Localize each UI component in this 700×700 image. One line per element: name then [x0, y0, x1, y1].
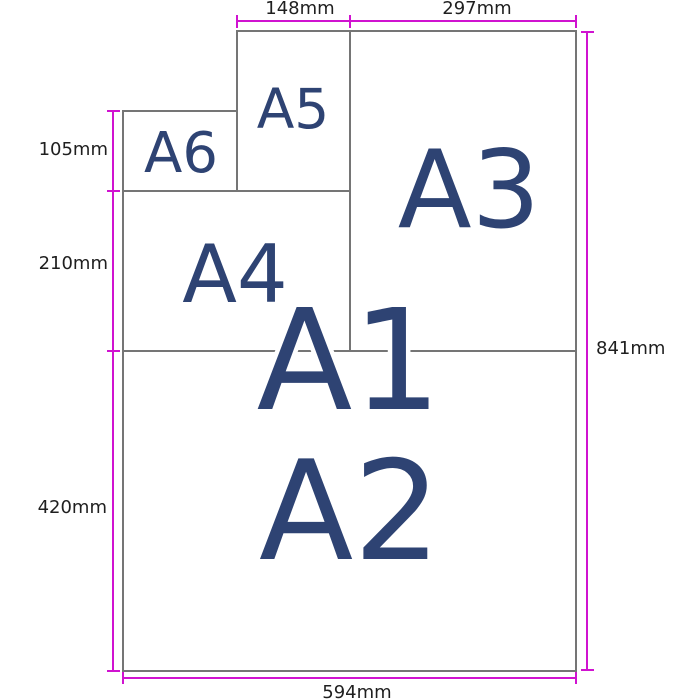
dimension-label-a3-width: 297mm — [442, 0, 511, 19]
a5-paper-label: A5 — [257, 77, 330, 141]
a2-paper-label: A2 — [259, 431, 441, 592]
dimension-label-a4-height: 210mm — [39, 253, 108, 274]
dimension-label-a2-height: 420mm — [38, 497, 107, 518]
paper-sizes-diagram: 148mm 297mm 105mm 210mm 420mm 841mm 594m… — [0, 0, 700, 700]
dimension-line-right — [581, 32, 594, 670]
a3-paper-label: A3 — [398, 128, 541, 253]
dimension-label-a1-height: 841mm — [596, 338, 665, 359]
dimension-label-a5-width: 148mm — [265, 0, 334, 19]
a1-paper-label: A1 — [257, 280, 442, 443]
dimension-label-a6-height: 105mm — [39, 139, 108, 160]
a6-paper-label: A6 — [144, 121, 218, 186]
dimension-line-left — [107, 111, 120, 671]
dimension-label-a1-width: 594mm — [322, 682, 391, 700]
